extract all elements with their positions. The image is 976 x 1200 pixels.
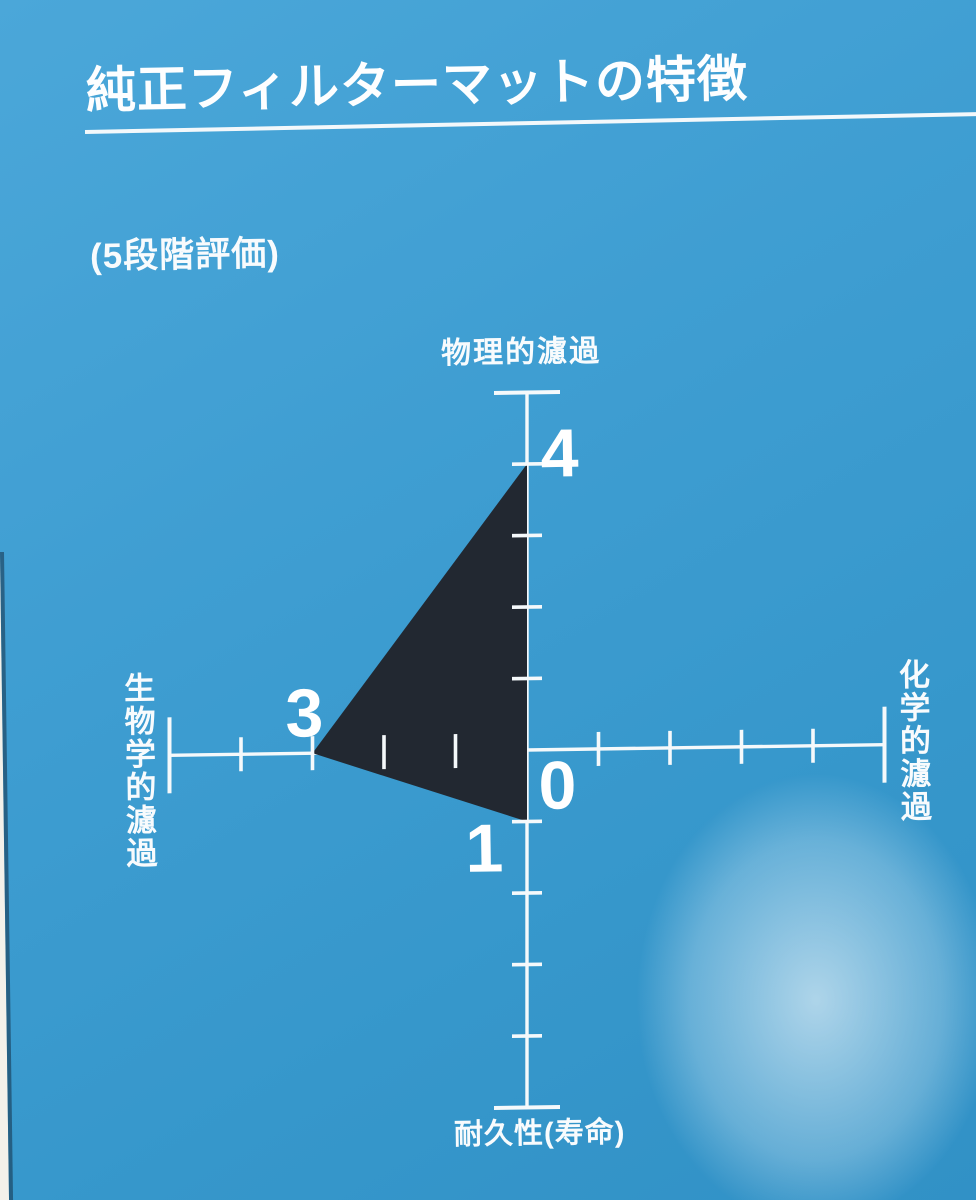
photo-canvas: 純正フィルターマットの特徴 (5段階評価) 物理的濾過 化学的濾過 耐久性(寿命… [0, 0, 976, 1200]
radar-polygon [313, 464, 528, 825]
radar-chart [0, 0, 976, 1200]
